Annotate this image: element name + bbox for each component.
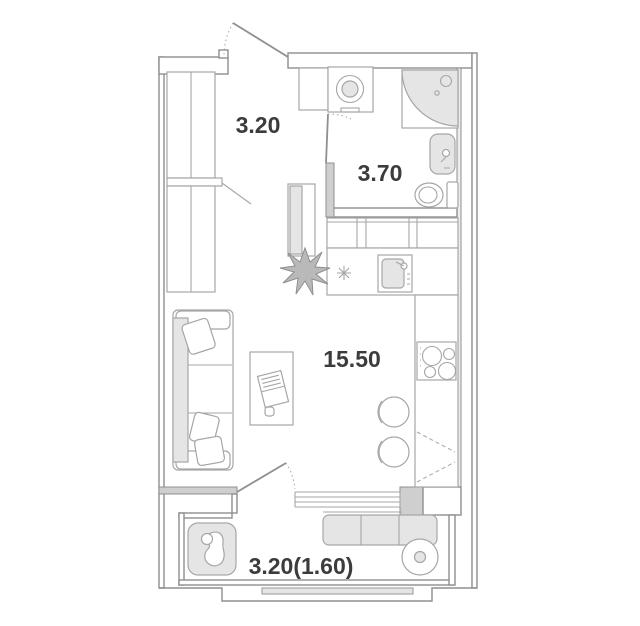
wall-window-pier bbox=[423, 487, 461, 515]
room-label-balcony: 3.20(1.60) bbox=[249, 553, 354, 579]
balcony-door bbox=[237, 463, 295, 492]
wall-balcony-connector bbox=[232, 494, 237, 513]
balcony-table bbox=[402, 539, 438, 575]
wall-top-right bbox=[288, 53, 472, 68]
refrigerator bbox=[288, 184, 315, 256]
facade-window bbox=[262, 588, 413, 594]
wall-balcony-left bbox=[179, 513, 184, 585]
room-label-living: 15.50 bbox=[323, 346, 381, 372]
room-label-bathroom: 3.70 bbox=[358, 160, 403, 186]
wardrobe-upper bbox=[167, 72, 215, 178]
wall-bathroom-left bbox=[326, 163, 334, 217]
wall-balcony-bottom bbox=[179, 580, 453, 585]
floor-plan: 3.20 3.70 15.50 3.20(1.60) bbox=[0, 0, 640, 626]
wall-livingroom-bottom bbox=[159, 487, 237, 494]
wardrobe-shelf bbox=[167, 178, 222, 186]
wall-bathroom-bottom bbox=[333, 208, 457, 217]
corner-shower bbox=[402, 70, 458, 128]
mouse bbox=[265, 407, 274, 416]
wall-balcony-right bbox=[449, 515, 455, 585]
bathroom-door bbox=[326, 114, 351, 163]
pillow bbox=[194, 436, 225, 466]
kitchen-fixtures bbox=[280, 184, 458, 487]
hallway-fixtures bbox=[167, 72, 251, 292]
cooktop bbox=[417, 342, 456, 380]
room-label-hallway: 3.20 bbox=[236, 112, 281, 138]
bathroom-fixtures bbox=[299, 67, 458, 208]
kitchen-wall-cabinets bbox=[327, 218, 458, 248]
wall-balcony-top-left bbox=[179, 513, 232, 518]
kitchen-sink bbox=[378, 255, 412, 292]
washbasin bbox=[430, 134, 455, 174]
toilet bbox=[415, 182, 458, 208]
entrance-door bbox=[224, 23, 288, 57]
washing-machine bbox=[328, 67, 373, 112]
bar-stool bbox=[378, 437, 409, 467]
entrance-frame bbox=[219, 50, 228, 58]
sofa bbox=[173, 310, 233, 470]
wall-left-outer bbox=[159, 57, 164, 588]
room-labels: 3.20 3.70 15.50 3.20(1.60) bbox=[236, 112, 403, 579]
wall-window-pier-gray bbox=[400, 487, 423, 515]
wardrobe-door-line bbox=[222, 183, 251, 204]
bathroom-cabinet bbox=[299, 68, 328, 110]
living-fixtures bbox=[173, 310, 293, 470]
small-plant bbox=[337, 266, 351, 280]
bar-stool bbox=[378, 397, 409, 427]
desk bbox=[250, 352, 293, 425]
balcony-window bbox=[295, 492, 400, 507]
wardrobe-lower bbox=[167, 186, 215, 292]
wall-right-outer bbox=[472, 53, 477, 588]
lounge-chair bbox=[188, 523, 236, 575]
